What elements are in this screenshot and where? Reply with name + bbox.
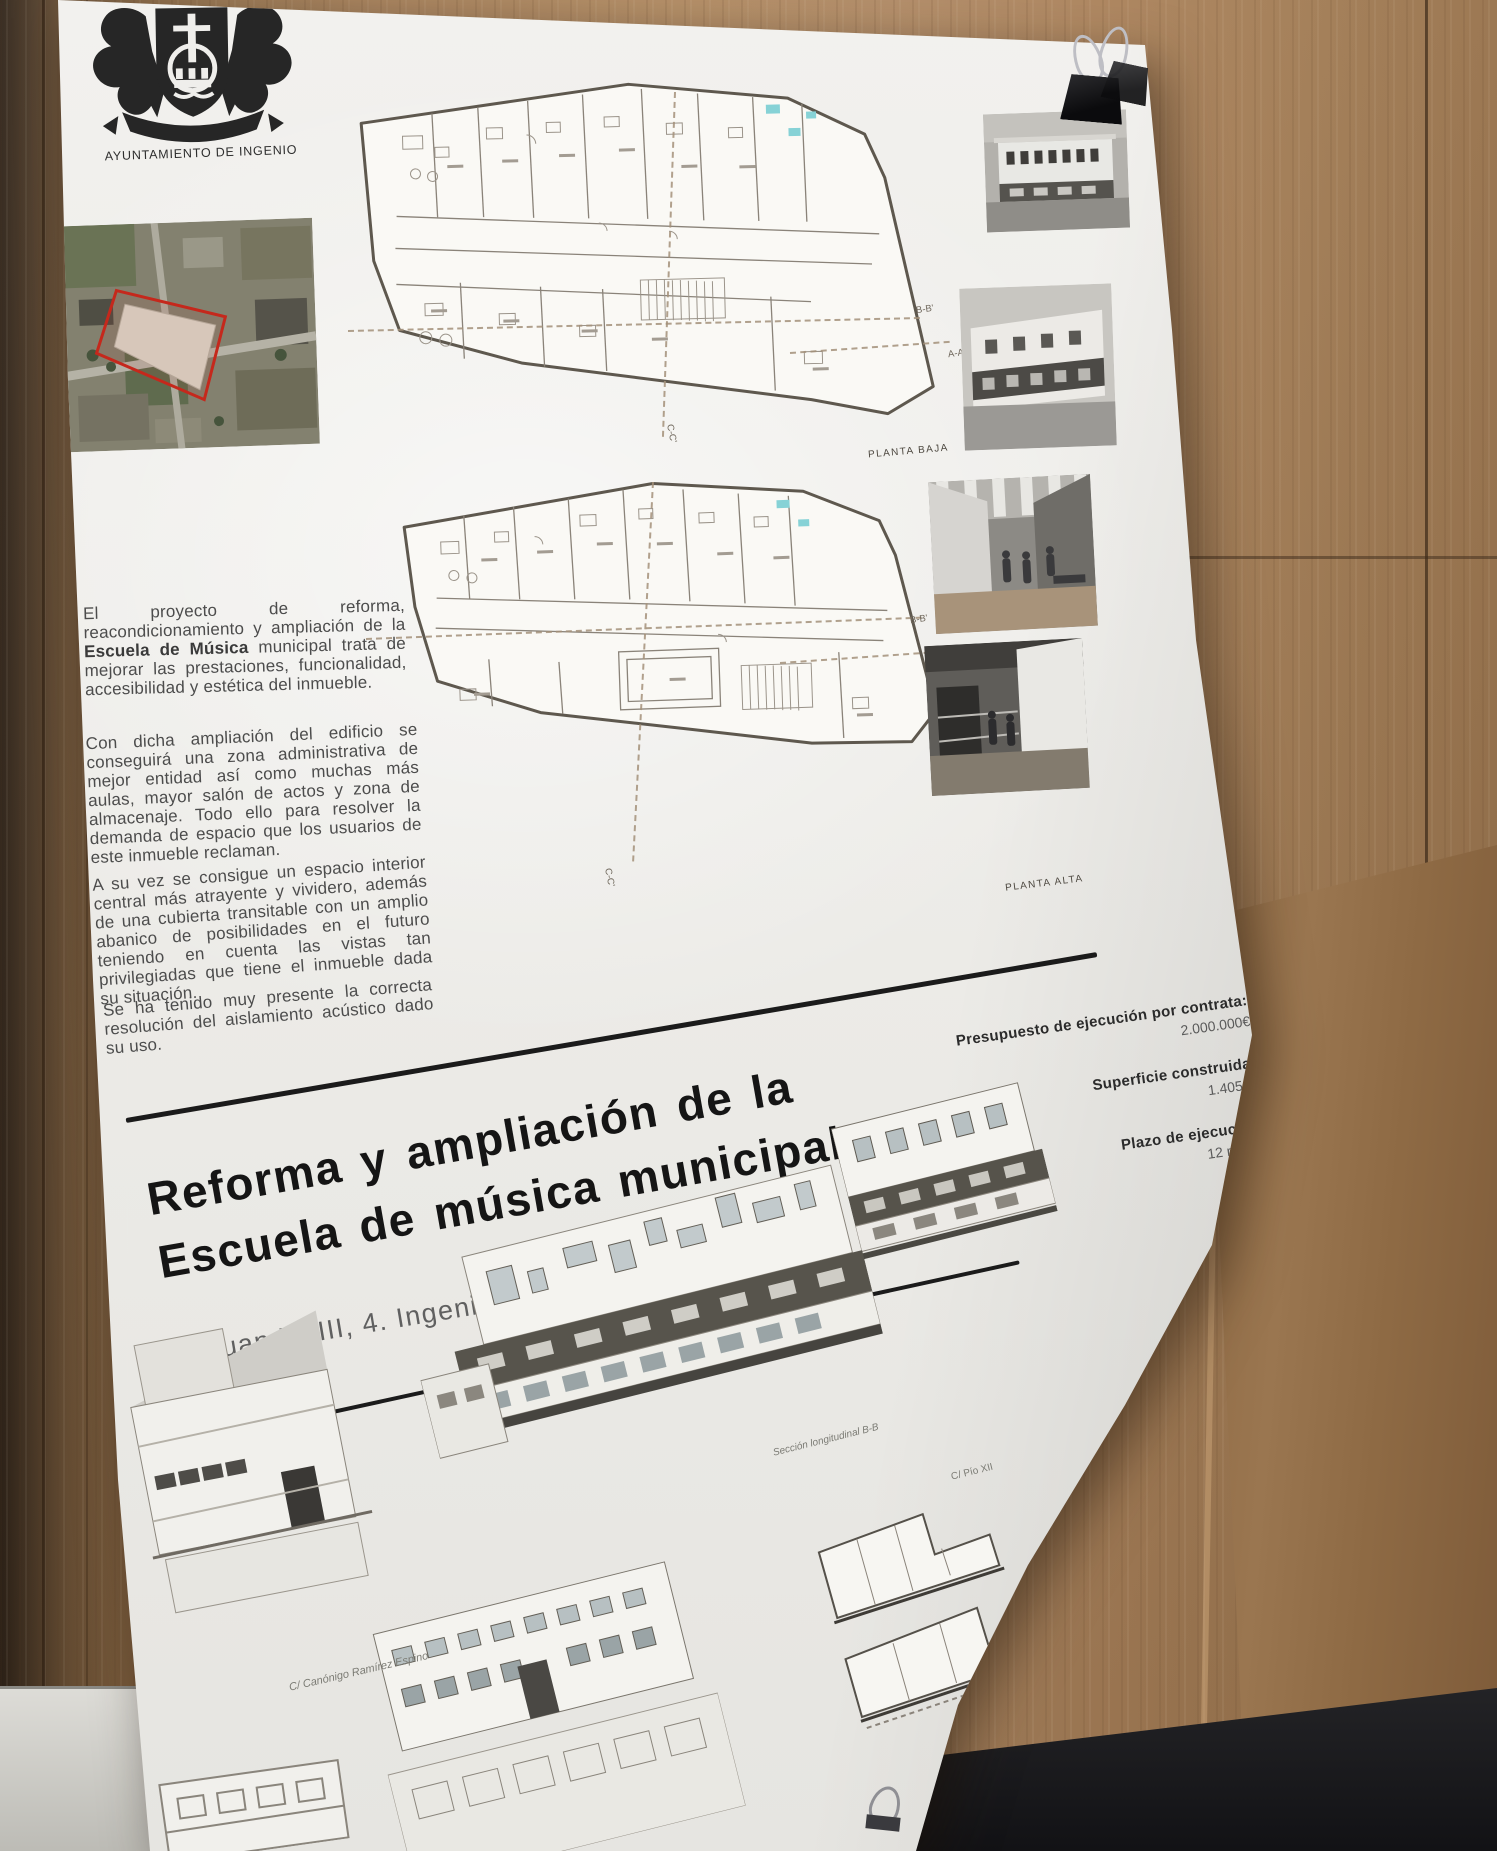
intro-paragraph-2: Con dicha ampliación del edificio se con…: [85, 720, 422, 868]
render-interior-2: [924, 638, 1090, 796]
section-marker-cc: C-C': [602, 867, 617, 888]
floor-plan-ground: [335, 64, 950, 470]
section-drawings: [800, 1468, 1057, 1769]
intro-paragraph-1: El proyecto de reforma, reacondicionamie…: [83, 596, 407, 700]
render-interior-1: [928, 474, 1098, 634]
architecture-poster: AYUNTAMIENTO DE INGENIO: [0, 0, 1497, 1851]
elevation-bottom-center: [344, 1518, 746, 1851]
photo-scene: AYUNTAMIENTO DE INGENIO: [0, 0, 1497, 1851]
plan-label-upper: PLANTA ALTA: [1005, 873, 1085, 894]
poster-shadow-wrap: AYUNTAMIENTO DE INGENIO: [0, 0, 1497, 1851]
aerial-photo: [62, 218, 320, 453]
elevation-right: [827, 1063, 1063, 1281]
drawing-bottom-left-partial: [150, 1745, 361, 1851]
floor-plan-upper: [382, 458, 958, 808]
render-exterior-1: [983, 110, 1130, 233]
render-exterior-2: [959, 283, 1117, 450]
ingenio-coat-of-arms-icon: [69, 0, 316, 148]
